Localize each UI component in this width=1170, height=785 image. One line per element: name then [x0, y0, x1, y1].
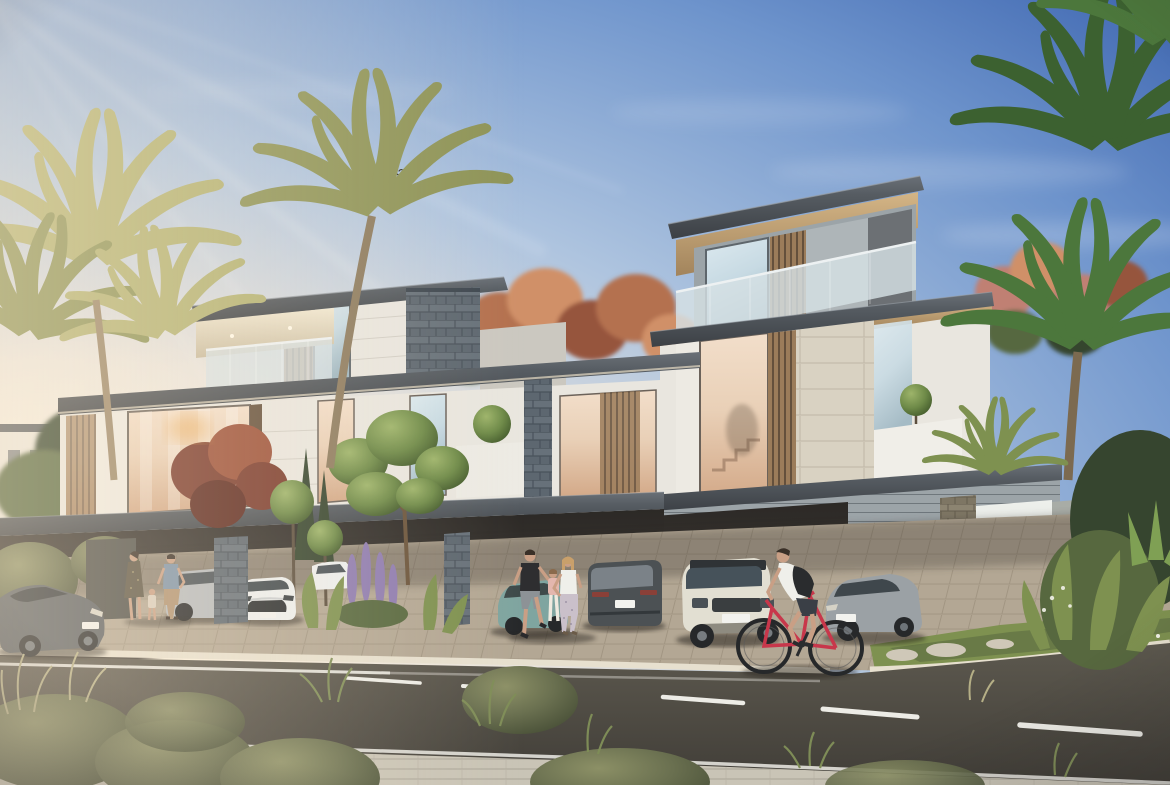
vignette	[0, 0, 1170, 785]
villa-render-image	[0, 0, 1170, 785]
scene-canvas	[0, 0, 1170, 785]
